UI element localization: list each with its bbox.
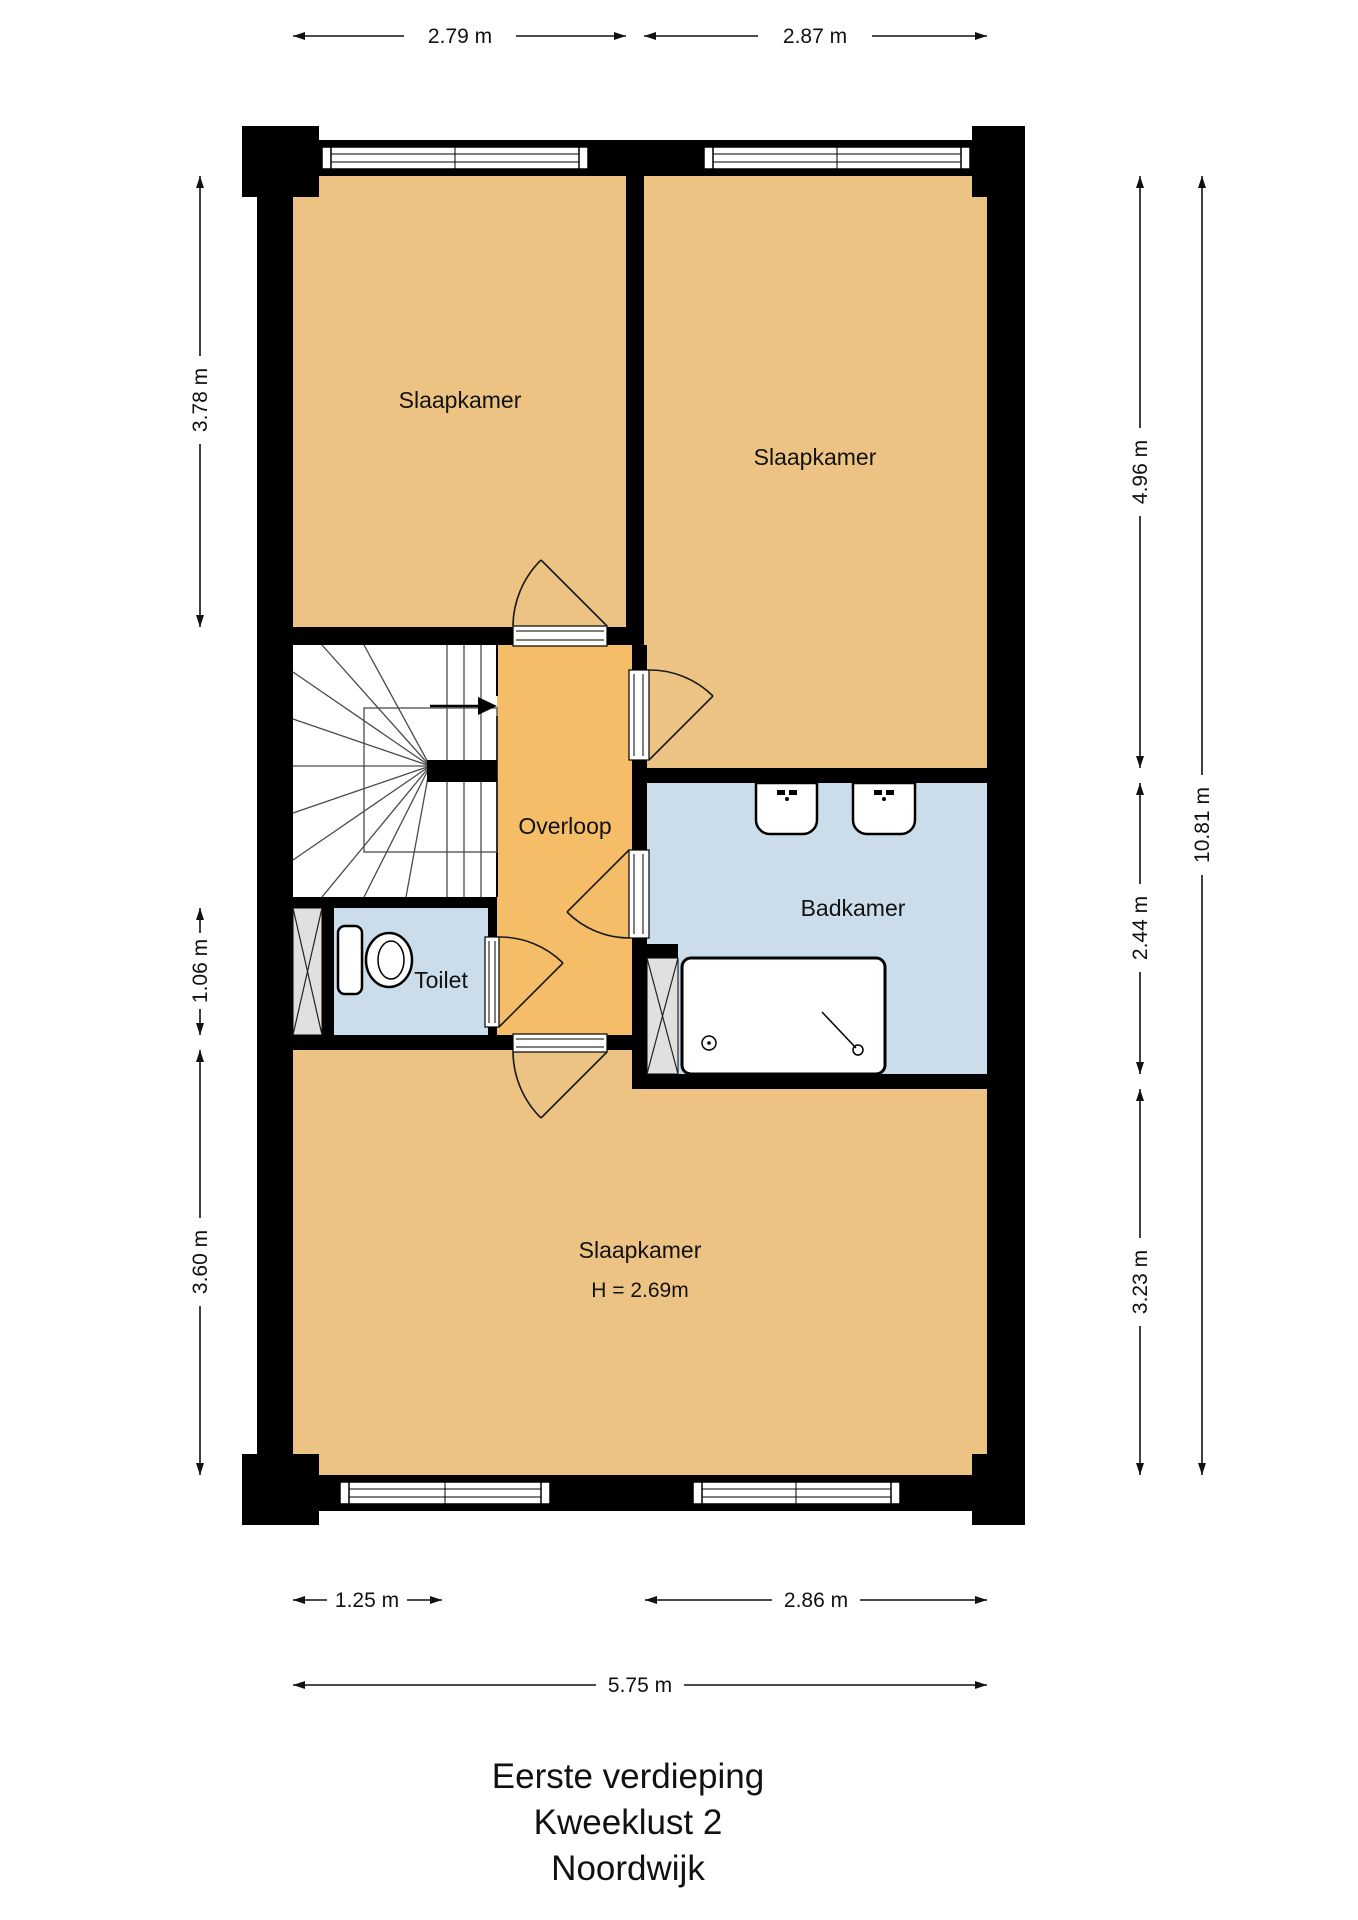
window-icon bbox=[340, 1482, 550, 1504]
dimension-right-1: 4.96 m bbox=[1129, 176, 1152, 768]
room-label-toilet: Toilet bbox=[414, 967, 468, 993]
dimension-label: 10.81 m bbox=[1191, 787, 1214, 863]
dimension-label: 2.79 m bbox=[428, 25, 492, 48]
window-icon bbox=[322, 147, 588, 169]
room-label-ceiling-height: H = 2.69m bbox=[591, 1279, 688, 1302]
dimension-top-right: 2.87 m bbox=[644, 25, 987, 48]
floorplan-page: Slaapkamer Slaapkamer Overloop Badkamer … bbox=[0, 0, 1358, 1920]
dimension-right-total: 10.81 m bbox=[1191, 176, 1214, 1475]
dimension-label: 2.44 m bbox=[1129, 896, 1152, 960]
shower-icon bbox=[682, 958, 885, 1074]
title-project: Kweeklust 2 bbox=[534, 1803, 723, 1842]
staircase-icon bbox=[293, 645, 497, 897]
dimension-left-1: 3.78 m bbox=[189, 176, 212, 627]
dimension-left-2: 1.06 m bbox=[189, 908, 212, 1035]
room-landing-area bbox=[497, 645, 632, 1035]
dimension-label: 5.75 m bbox=[608, 1674, 672, 1697]
room-label-bedroom-top-left: Slaapkamer bbox=[399, 387, 522, 413]
title-city: Noordwijk bbox=[551, 1849, 705, 1888]
room-bedroom-top-right-area bbox=[644, 176, 987, 768]
dimension-label: 4.96 m bbox=[1129, 440, 1152, 504]
dimension-label: 3.23 m bbox=[1129, 1250, 1152, 1314]
dimension-bottom-total: 5.75 m bbox=[293, 1674, 987, 1697]
duct-cross-icon bbox=[647, 958, 678, 1074]
room-label-bedroom-top-right: Slaapkamer bbox=[754, 444, 877, 470]
floorplan-canvas: Slaapkamer Slaapkamer Overloop Badkamer … bbox=[0, 0, 1358, 1920]
dimension-left-3: 3.60 m bbox=[189, 1050, 212, 1475]
room-label-landing: Overloop bbox=[518, 813, 611, 839]
dimension-label: 2.86 m bbox=[784, 1589, 848, 1612]
room-label-bedroom-bottom: Slaapkamer bbox=[579, 1237, 702, 1263]
dimension-right-2: 2.44 m bbox=[1129, 783, 1152, 1074]
duct-cross-icon bbox=[293, 908, 322, 1035]
window-icon bbox=[704, 147, 970, 169]
dimension-label: 3.60 m bbox=[189, 1230, 212, 1294]
dimension-label: 3.78 m bbox=[189, 368, 212, 432]
sink-icon bbox=[853, 783, 915, 834]
dimension-bottom-right: 2.86 m bbox=[645, 1589, 987, 1612]
dimension-label: 1.06 m bbox=[189, 939, 212, 1003]
sink-icon bbox=[756, 783, 817, 834]
dimension-label: 2.87 m bbox=[783, 25, 847, 48]
room-label-bathroom: Badkamer bbox=[801, 895, 906, 921]
window-icon bbox=[693, 1482, 900, 1504]
dimension-top-left: 2.79 m bbox=[293, 25, 626, 48]
dimension-label: 1.25 m bbox=[335, 1589, 399, 1612]
dimension-right-3: 3.23 m bbox=[1129, 1089, 1152, 1475]
dimension-bottom-left: 1.25 m bbox=[293, 1589, 442, 1612]
title-floor: Eerste verdieping bbox=[492, 1757, 764, 1796]
title-block: Eerste verdieping Kweeklust 2 Noordwijk bbox=[492, 1757, 764, 1888]
